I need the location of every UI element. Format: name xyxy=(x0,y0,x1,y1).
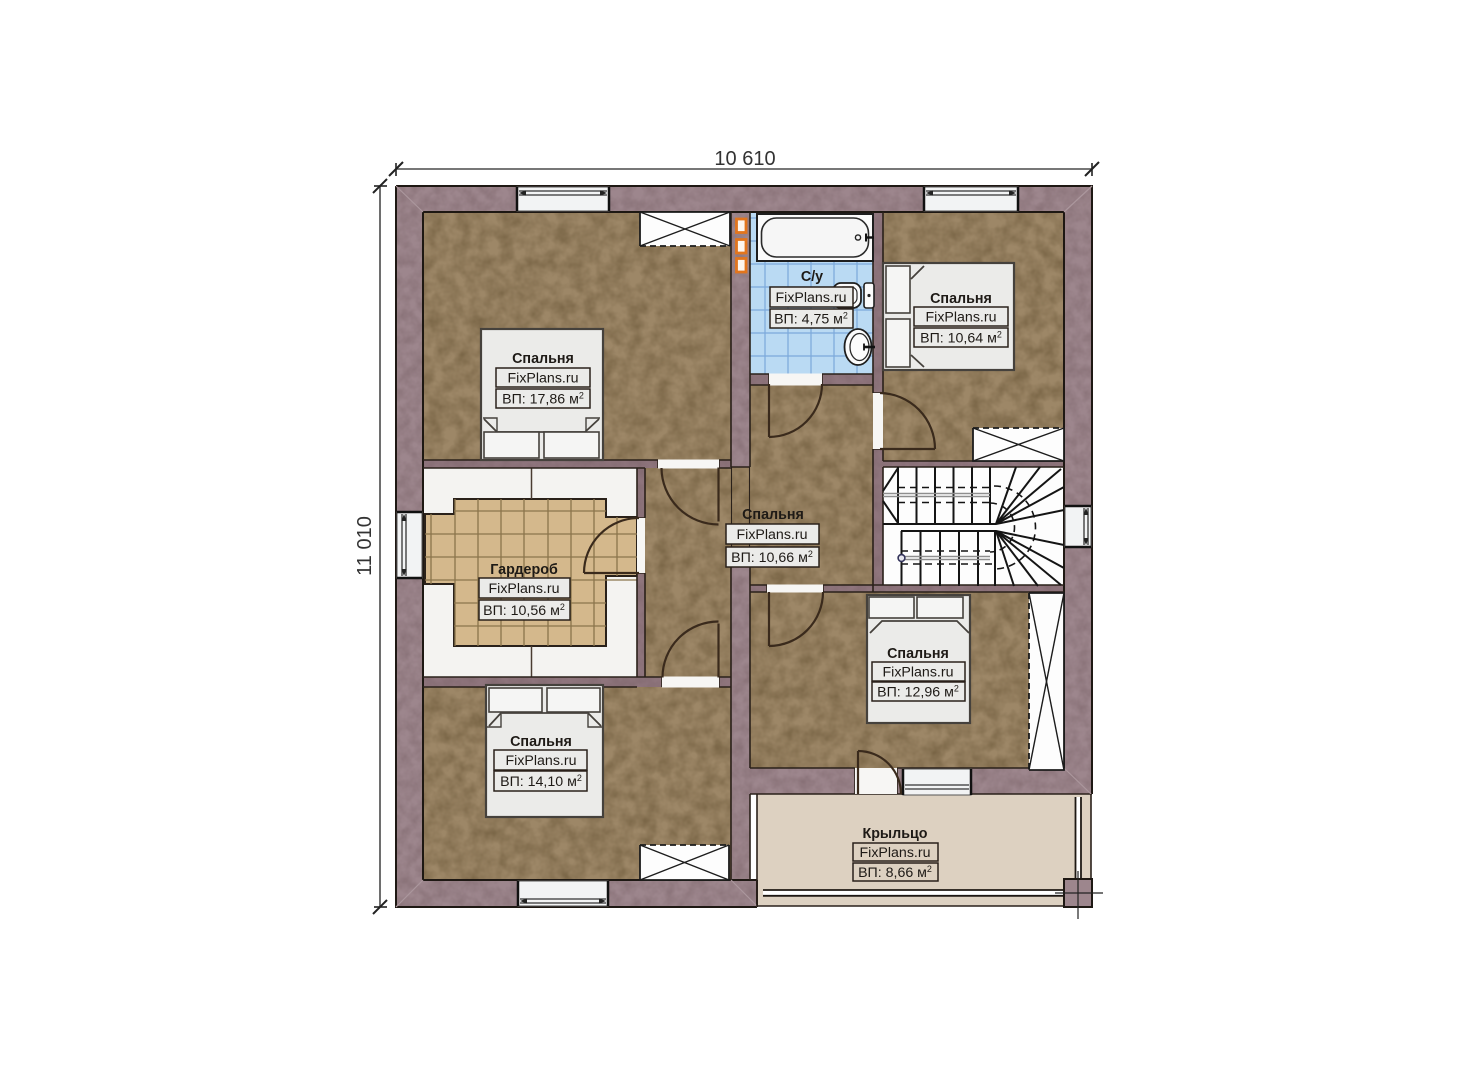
svg-text:ВП: 8,66 м2: ВП: 8,66 м2 xyxy=(858,864,932,881)
svg-text:Крыльцо: Крыльцо xyxy=(862,826,927,842)
svg-text:Спальня: Спальня xyxy=(930,291,992,307)
svg-text:Спальня: Спальня xyxy=(510,734,572,750)
svg-text:Спальня: Спальня xyxy=(742,507,804,523)
svg-text:FixPlans.ru: FixPlans.ru xyxy=(508,371,579,387)
svg-text:ВП: 10,64 м2: ВП: 10,64 м2 xyxy=(920,330,1002,347)
svg-text:ВП: 14,10 м2: ВП: 14,10 м2 xyxy=(500,773,582,790)
svg-text:Спальня: Спальня xyxy=(887,646,949,662)
svg-text:Спальня: Спальня xyxy=(512,351,574,367)
svg-text:ВП: 10,56 м2: ВП: 10,56 м2 xyxy=(483,602,565,619)
svg-text:FixPlans.ru: FixPlans.ru xyxy=(506,753,577,769)
svg-text:ВП: 10,66 м2: ВП: 10,66 м2 xyxy=(731,549,813,566)
svg-text:FixPlans.ru: FixPlans.ru xyxy=(776,290,847,306)
svg-text:FixPlans.ru: FixPlans.ru xyxy=(883,665,954,681)
svg-text:ВП: 17,86 м2: ВП: 17,86 м2 xyxy=(502,391,584,408)
svg-text:С/у: С/у xyxy=(801,269,823,285)
svg-text:FixPlans.ru: FixPlans.ru xyxy=(926,310,997,326)
svg-text:FixPlans.ru: FixPlans.ru xyxy=(860,845,931,861)
svg-text:FixPlans.ru: FixPlans.ru xyxy=(737,527,808,543)
svg-text:10 610: 10 610 xyxy=(714,148,775,170)
svg-text:ВП: 4,75 м2: ВП: 4,75 м2 xyxy=(774,311,848,328)
svg-text:Гардероб: Гардероб xyxy=(490,562,558,578)
svg-text:FixPlans.ru: FixPlans.ru xyxy=(489,581,560,597)
svg-text:ВП: 12,96 м2: ВП: 12,96 м2 xyxy=(877,684,959,701)
svg-text:11 010: 11 010 xyxy=(354,516,376,576)
